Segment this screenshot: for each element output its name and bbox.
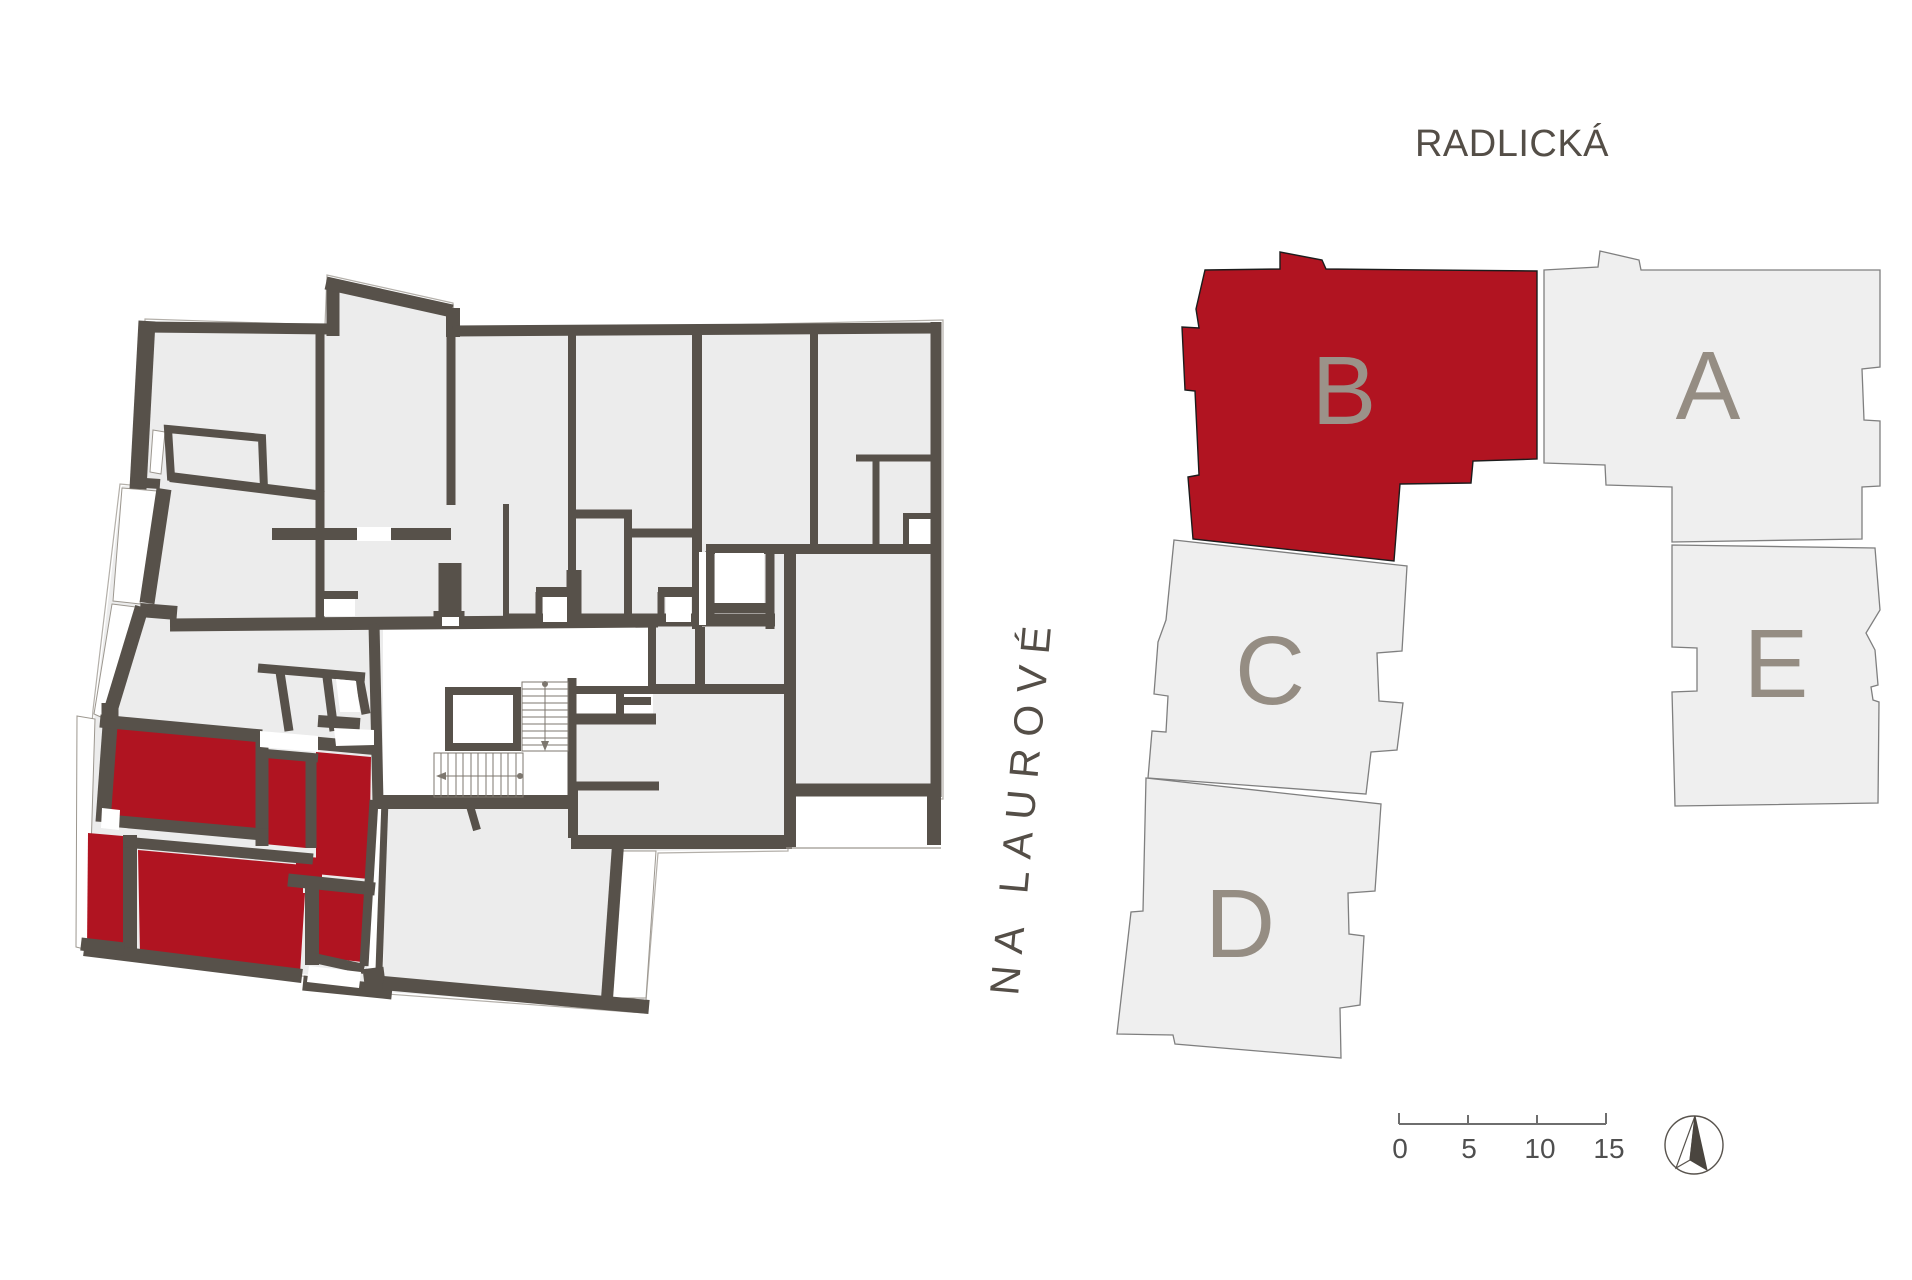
svg-text:10: 10 (1524, 1133, 1555, 1164)
svg-text:B: B (1312, 336, 1377, 445)
svg-text:RADLICKÁ: RADLICKÁ (1415, 122, 1609, 165)
svg-text:NA LAUROVÉ: NA LAUROVÉ (981, 612, 1061, 997)
svg-text:E: E (1744, 609, 1809, 718)
svg-text:0: 0 (1392, 1133, 1408, 1164)
svg-text:A: A (1676, 331, 1741, 440)
svg-text:15: 15 (1593, 1133, 1624, 1164)
svg-text:D: D (1205, 869, 1275, 978)
svg-text:C: C (1235, 616, 1305, 725)
svg-text:5: 5 (1461, 1133, 1477, 1164)
